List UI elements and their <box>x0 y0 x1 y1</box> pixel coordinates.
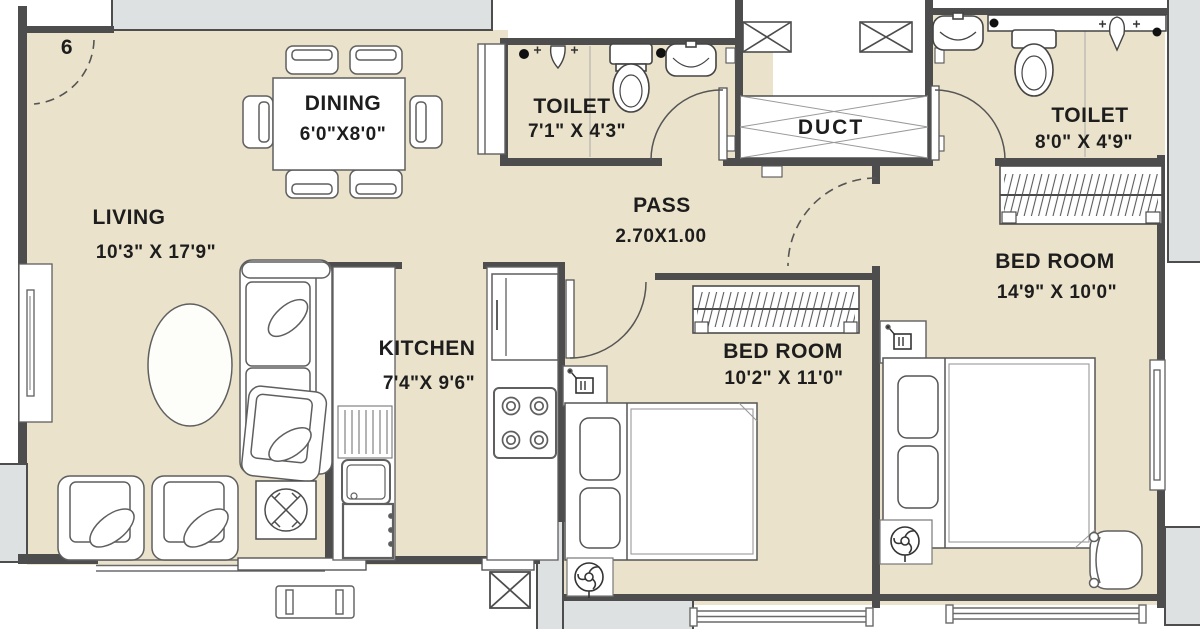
shower-icon <box>519 49 529 59</box>
wardrobe-bedroom1 <box>693 286 859 333</box>
sofa-corner-seat <box>241 385 328 483</box>
toilet1-label: TOILET <box>533 95 610 118</box>
toilet1-door-leaf <box>719 88 727 160</box>
unit-number: 6 <box>61 36 73 59</box>
refrigerator <box>343 504 393 558</box>
duct-zone <box>726 22 944 177</box>
bedroom1-window <box>690 608 873 626</box>
kitchen-sink <box>342 460 390 504</box>
top-slab <box>112 0 492 30</box>
dining-chair <box>286 46 338 74</box>
bedroom2-dims: 14'9" X 10'0" <box>997 282 1117 303</box>
left-bottom-block <box>0 464 27 562</box>
dining-chair <box>243 96 273 148</box>
dining-chair <box>350 170 402 198</box>
floor-plan: 6 DINING 6'0"X8'0" LIVING 10'3" X 17'9" … <box>0 0 1200 629</box>
pillow <box>898 446 938 508</box>
upper-cabinet <box>492 274 558 360</box>
wc-toilet <box>610 44 652 112</box>
dining-dims: 6'0"X8'0" <box>300 124 387 145</box>
wc-toilet <box>1012 30 1056 96</box>
dresser <box>1150 360 1165 490</box>
wardrobe-bedroom2 <box>1000 166 1162 224</box>
dining-chair <box>286 170 338 198</box>
dining-chair <box>350 46 402 74</box>
duct-label: DUCT <box>798 116 864 139</box>
armchair <box>152 476 238 560</box>
washbasin <box>933 13 983 50</box>
bedroom2-label: BED ROOM <box>995 250 1115 273</box>
kitchen-label: KITCHEN <box>379 337 476 360</box>
planter-bench <box>276 586 354 618</box>
bedroom1-door-leaf <box>566 280 574 358</box>
tv-unit <box>19 264 52 422</box>
column-x <box>490 572 530 608</box>
duct-column-right <box>860 22 912 52</box>
pillow <box>580 418 620 480</box>
chair <box>1090 531 1143 589</box>
toilet1-dims: 7'1" X 4'3" <box>528 121 626 142</box>
toilet2-dims: 8'0" X 4'9" <box>1035 132 1133 153</box>
pillow <box>580 488 620 548</box>
side-table <box>256 481 316 539</box>
center-bottom-block-h <box>563 598 693 629</box>
pillow <box>898 376 938 438</box>
vanity-counter <box>988 15 1166 31</box>
toilet2-label: TOILET <box>1051 104 1128 127</box>
kitchen-dims: 7'4"X 9'6" <box>383 373 475 394</box>
right-bottom-block <box>1165 527 1200 625</box>
pass-label: PASS <box>633 194 691 217</box>
duct-column-left <box>743 22 791 52</box>
armchair <box>58 476 144 560</box>
bedroom1-dims: 10'2" X 11'0" <box>724 368 843 389</box>
stove <box>494 388 556 458</box>
washbasin <box>666 41 716 76</box>
living-dims: 10'3" X 17'9" <box>96 242 216 263</box>
right-top-slab <box>1168 0 1200 262</box>
cabinet <box>478 44 505 154</box>
toilet2-door-leaf <box>931 86 939 160</box>
sofa <box>240 260 332 483</box>
floor-plan-canvas: 6 DINING 6'0"X8'0" LIVING 10'3" X 17'9" … <box>0 0 1200 629</box>
bed-bedroom1 <box>565 403 757 560</box>
pass-dims: 2.70X1.00 <box>615 226 706 247</box>
power-point <box>880 321 926 363</box>
kitchen-counter-left <box>333 267 395 560</box>
rug-oval <box>148 304 232 426</box>
living-label: LIVING <box>92 206 165 229</box>
power-point <box>563 366 607 406</box>
kitchen-counter-right <box>487 267 558 560</box>
bedroom2-window <box>946 605 1146 623</box>
dining-label: DINING <box>305 92 382 115</box>
dining-chair <box>410 96 442 148</box>
bedroom1-label: BED ROOM <box>723 340 843 363</box>
